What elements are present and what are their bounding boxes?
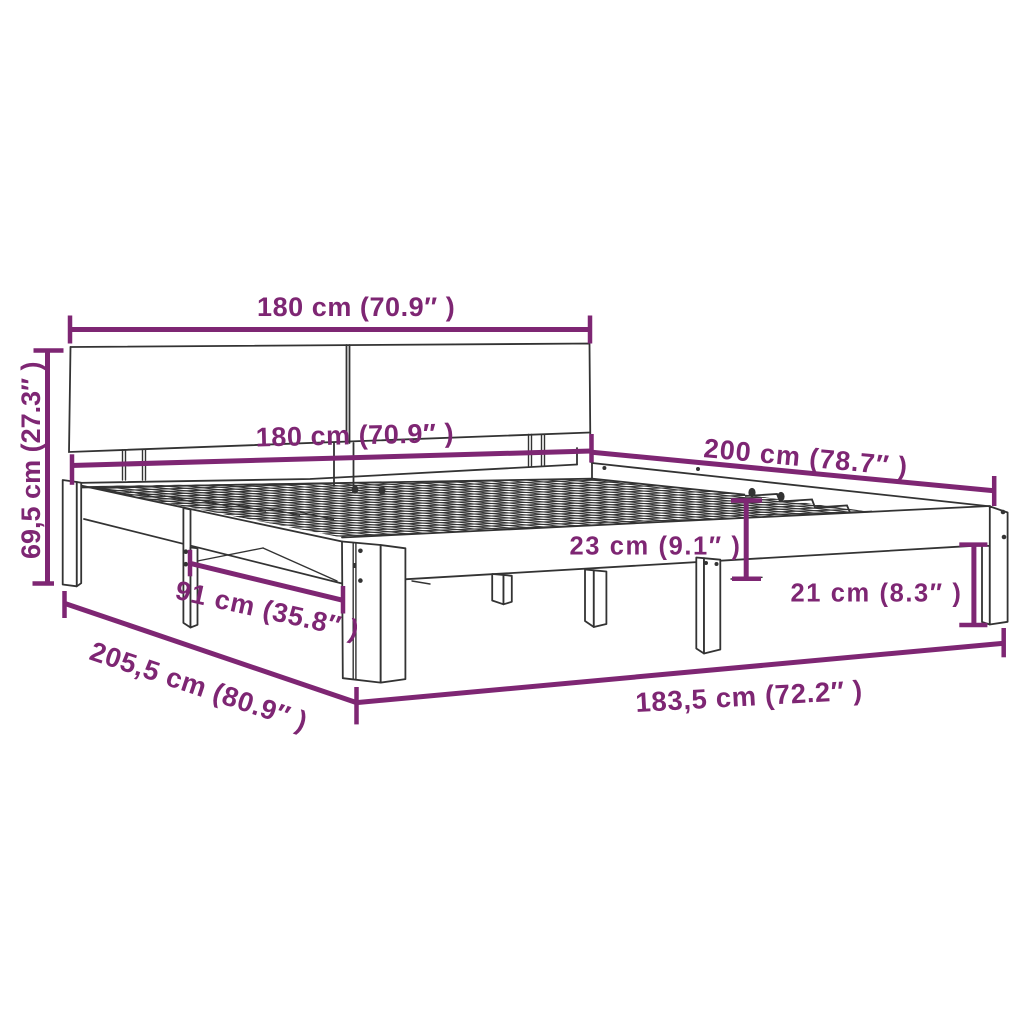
svg-text:21 cm (8.3″ ): 21 cm (8.3″ ) xyxy=(791,580,963,608)
svg-text:180 cm (70.9″ ): 180 cm (70.9″ ) xyxy=(255,418,454,452)
svg-text:180 cm (70.9″ ): 180 cm (70.9″ ) xyxy=(257,292,455,322)
svg-text:91 cm (35.8″ ): 91 cm (35.8″ ) xyxy=(173,575,363,645)
svg-text:69,5 cm (27.3″ ): 69,5 cm (27.3″ ) xyxy=(16,361,46,559)
svg-text:23 cm (9.1″ ): 23 cm (9.1″ ) xyxy=(570,533,742,561)
svg-text:183,5 cm (72.2″ ): 183,5 cm (72.2″ ) xyxy=(635,674,864,718)
